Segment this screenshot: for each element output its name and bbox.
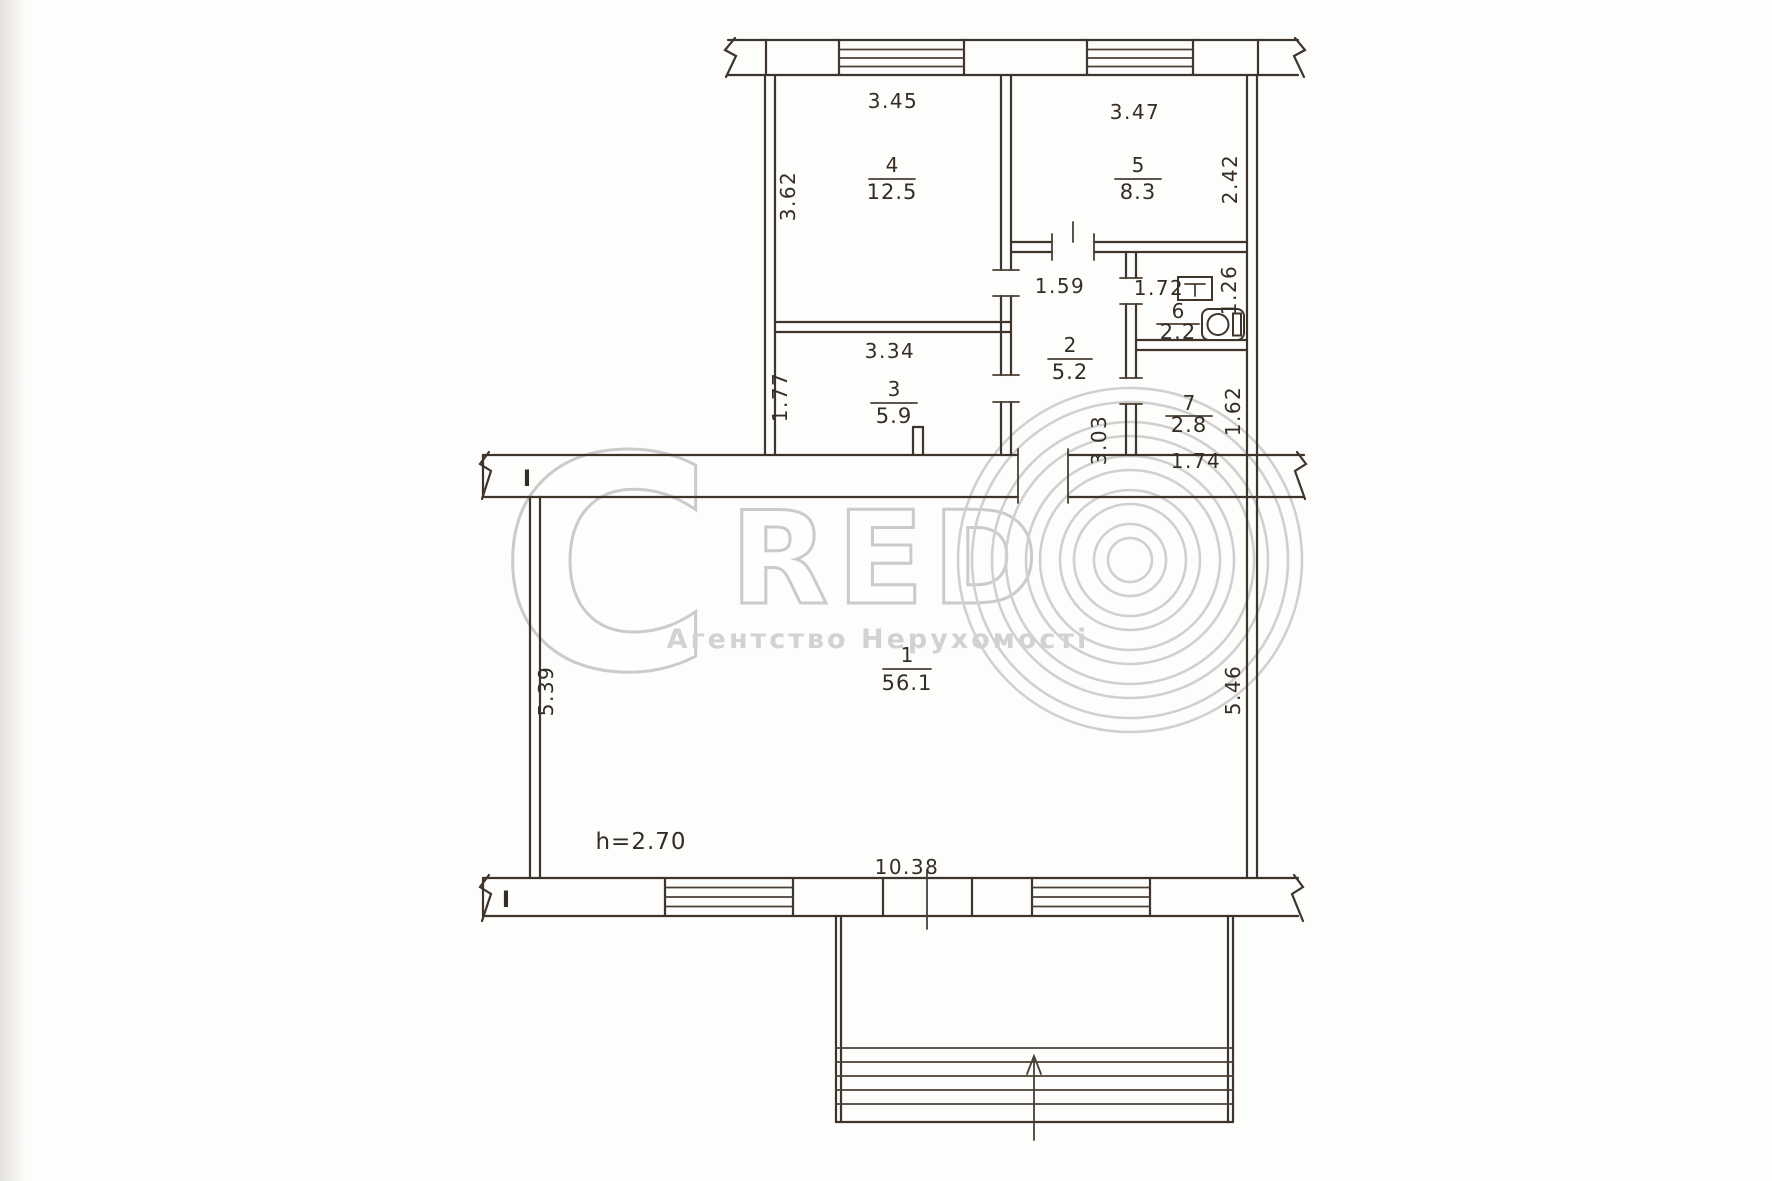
ceiling-height-note: h=2.70 bbox=[595, 829, 686, 855]
dim-room7-depth: 1.62 bbox=[1221, 386, 1245, 437]
window-top-right bbox=[1087, 50, 1193, 67]
window-top-left bbox=[839, 50, 964, 67]
dim-room6-width: 1.72 bbox=[1134, 276, 1185, 300]
wall-break-mark bbox=[1295, 452, 1306, 499]
section-mark-bottom: I bbox=[502, 888, 510, 913]
scan-edge-shadow bbox=[0, 0, 26, 1181]
exterior-top-wall bbox=[725, 38, 1305, 77]
room6-area: 2.2 bbox=[1160, 320, 1196, 344]
room5-number: 5 bbox=[1132, 153, 1145, 177]
floor-plan-drawing: C RED Агентство Нерухомості bbox=[0, 0, 1772, 1181]
dim-room6-depth: 1.26 bbox=[1217, 265, 1241, 316]
section-mark-top: I bbox=[523, 467, 531, 492]
wall-break-mark bbox=[480, 875, 491, 921]
room7-number: 7 bbox=[1183, 391, 1196, 415]
room-label-4: 4 12.5 bbox=[867, 153, 918, 204]
room-label-6: 6 2.2 bbox=[1157, 299, 1199, 344]
room-label-5: 5 8.3 bbox=[1115, 153, 1161, 204]
entrance-arrow-icon bbox=[1027, 1056, 1041, 1140]
upper-interior-walls bbox=[765, 75, 1257, 878]
dim-room1-depth-right: 5.46 bbox=[1221, 665, 1245, 716]
dim-room3-depth: 1.77 bbox=[768, 372, 792, 423]
dim-room5-depth: 2.42 bbox=[1218, 154, 1242, 205]
window-bottom-right bbox=[1032, 888, 1150, 907]
room-label-2: 2 5.2 bbox=[1048, 333, 1092, 384]
dim-room5-width: 3.47 bbox=[1110, 100, 1161, 124]
room4-number: 4 bbox=[886, 153, 899, 177]
dim-room4-depth: 3.62 bbox=[776, 171, 800, 222]
room4-area: 12.5 bbox=[867, 180, 918, 204]
door-opening-ticks bbox=[1052, 222, 1094, 260]
dim-room1-width: 10.38 bbox=[875, 855, 940, 879]
dim-room1-depth-left: 5.39 bbox=[534, 666, 558, 717]
room2-number: 2 bbox=[1064, 333, 1077, 357]
room-label-3: 3 5.9 bbox=[871, 377, 917, 428]
room3-area: 5.9 bbox=[876, 404, 912, 428]
wall-break-mark bbox=[480, 452, 491, 499]
dim-room3-width: 3.34 bbox=[865, 339, 916, 363]
wall-break-mark bbox=[1292, 875, 1303, 921]
room7-area: 2.8 bbox=[1171, 413, 1207, 437]
room-label-7: 7 2.8 bbox=[1166, 391, 1212, 437]
dim-room2-width: 1.59 bbox=[1035, 274, 1086, 298]
room1-number: 1 bbox=[901, 643, 914, 667]
dim-room4-width: 3.45 bbox=[868, 89, 919, 113]
wall-break-mark bbox=[725, 38, 736, 77]
door-opening-ticks bbox=[993, 270, 1019, 402]
dim-room2-depth: 3.03 bbox=[1087, 415, 1111, 466]
dim-room7-width: 1.74 bbox=[1171, 449, 1222, 473]
wall-break-mark bbox=[1294, 38, 1305, 77]
balcony-terrace bbox=[836, 916, 1233, 1140]
floor-plan-scan: C RED Агентство Нерухомості bbox=[0, 0, 1772, 1181]
room3-number: 3 bbox=[888, 377, 901, 401]
room2-area: 5.2 bbox=[1052, 360, 1088, 384]
room1-area: 56.1 bbox=[882, 671, 933, 695]
watermark-subtitle: Агентство Нерухомості bbox=[667, 624, 1090, 655]
window-bottom-left bbox=[665, 888, 793, 907]
watermark-letters-red: RED bbox=[730, 485, 1046, 634]
room5-area: 8.3 bbox=[1120, 180, 1156, 204]
